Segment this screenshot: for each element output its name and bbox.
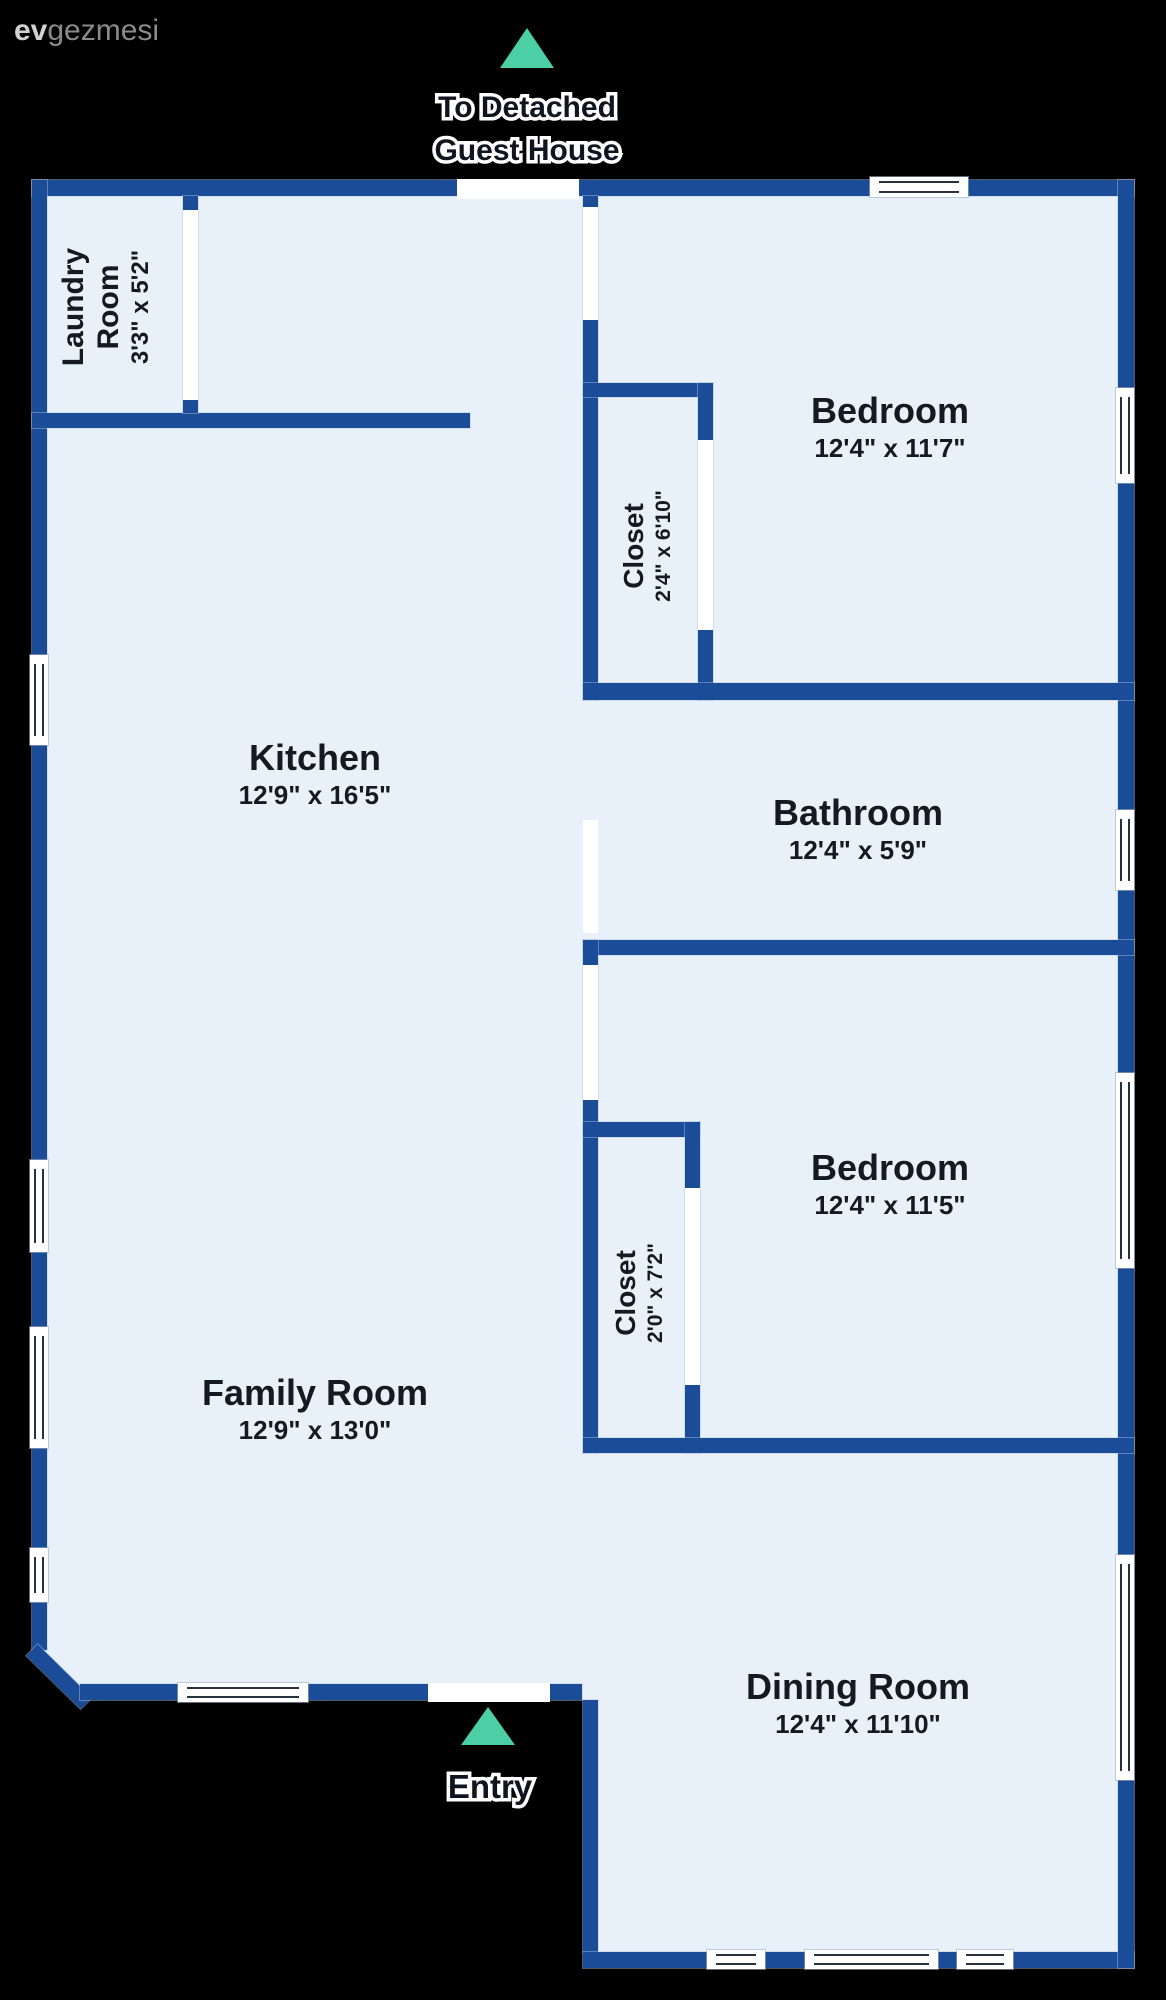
room-name: Kitchen [239,738,392,778]
wall-bedroom2-bottom [583,1438,1134,1453]
wall-bathroom-top [583,683,1134,700]
wall-closet2-top [583,1122,700,1137]
door-opening-bathroom [583,820,598,933]
logo-bold: ev [14,14,47,47]
window-dining-bottom-2 [805,1950,938,1969]
floor-plan-canvas: evgezmesi To Detached To Detached Guest … [0,0,1166,2000]
logo-rest: gezmesi [47,14,159,47]
room-dims: 12'4" x 11'5" [811,1188,969,1222]
floor-left-wing [32,180,598,1700]
window-dining-bottom-3 [957,1950,1013,1969]
door-opening-bedroom1 [583,207,598,320]
room-name: Family Room [202,1373,428,1413]
room-dims: 3'3" x 5'2" [126,232,156,382]
room-dims: 12'4" x 11'7" [811,431,969,465]
window-dining-bottom-1 [707,1950,765,1969]
room-name: Bedroom [811,1148,969,1188]
entry-arrow-icon [461,1707,515,1745]
window-right-bathroom [1116,810,1134,890]
window-left-kitchen [30,655,48,745]
room-label-bathroom: Bathroom 12'4" x 5'9" [773,793,943,867]
room-label-family: Family Room 12'9" x 13'0" [202,1373,428,1447]
room-label-closet2: Closet 2'0" x 7'2" [610,1208,670,1378]
guest-house-arrow-icon [500,28,554,68]
room-dims: 12'9" x 16'5" [239,778,392,812]
door-opening-bedroom2 [583,965,598,1100]
label-text: Entry [448,1768,532,1805]
label-text: Guest House [434,134,619,167]
door-opening-closet2 [685,1188,700,1385]
entry-label: Entry Entry [448,1768,532,1806]
door-opening-closet1 [698,440,713,630]
room-label-closet1: Closet 2'4" x 6'10" [618,461,678,631]
window-left-family-1 [30,1160,48,1252]
room-name: Bedroom [811,391,969,431]
room-name: Closet [618,461,650,631]
room-dims: 12'4" x 5'9" [773,833,943,867]
window-left-family-2 [30,1327,48,1448]
wall-closet1-top [583,383,713,397]
window-left-family-3 [30,1548,48,1602]
guest-house-label-line2: Guest House Guest House [434,134,619,168]
guest-house-label-line1: To Detached To Detached [438,91,616,125]
wall-top [32,180,1134,196]
room-dims: 12'9" x 13'0" [202,1413,428,1447]
window-right-dining [1116,1555,1134,1780]
room-label-dining: Dining Room 12'4" x 11'10" [746,1667,970,1741]
window-right-bedroom2 [1116,1073,1134,1268]
room-dims: 2'0" x 7'2" [642,1208,670,1378]
window-family-bottom [178,1683,308,1702]
wall-dining-left [583,1700,598,1952]
room-name: Closet [610,1208,642,1378]
room-label-bedroom2: Bedroom 12'4" x 11'5" [811,1148,969,1222]
room-name: Laundry Room [56,232,126,382]
room-name: Bathroom [773,793,943,833]
room-name: Dining Room [746,1667,970,1707]
room-label-bedroom1: Bedroom 12'4" x 11'7" [811,391,969,465]
wall-bathroom-bottom [583,940,1134,955]
room-dims: 12'4" x 11'10" [746,1707,970,1741]
wall-laundry-bottom [32,413,470,428]
window-right-bedroom1 [1116,388,1134,483]
door-opening-laundry [183,210,198,400]
door-opening-entry [428,1683,550,1702]
door-opening-guest-house [457,179,579,199]
label-text: To Detached [438,91,616,124]
room-label-kitchen: Kitchen 12'9" x 16'5" [239,738,392,812]
room-dims: 2'4" x 6'10" [650,461,678,631]
window-top-bedroom1 [870,177,968,197]
room-label-laundry: Laundry Room 3'3" x 5'2" [56,232,156,382]
evgezmesi-logo: evgezmesi [14,16,159,46]
